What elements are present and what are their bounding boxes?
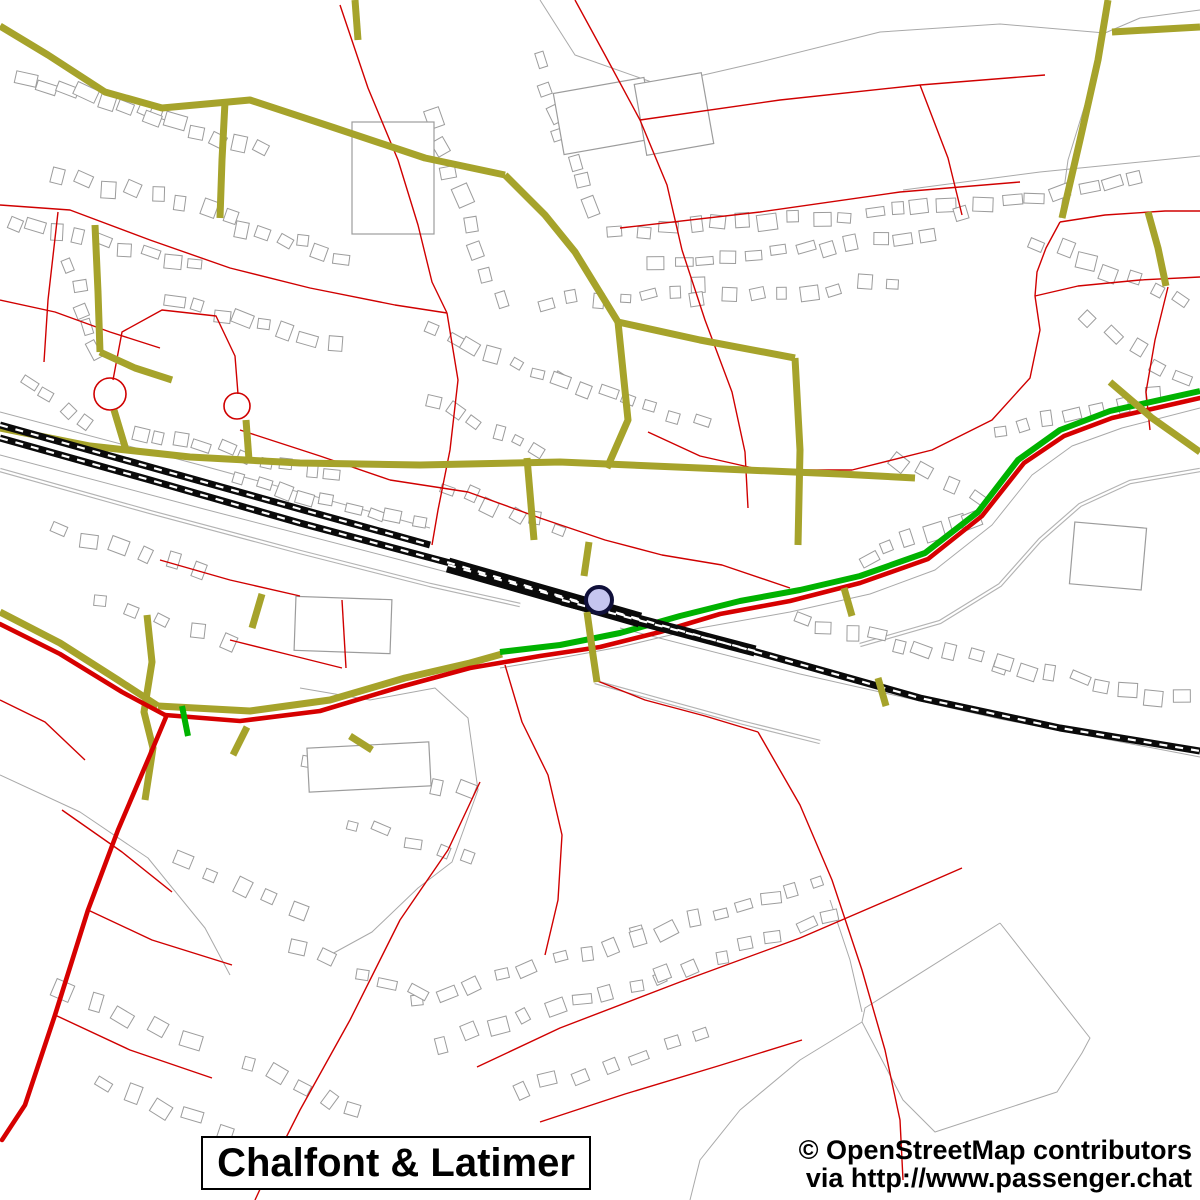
station-marker <box>586 587 612 613</box>
map-title: Chalfont & Latimer <box>217 1141 575 1186</box>
map-attribution: © OpenStreetMap contributors via http://… <box>799 1136 1192 1192</box>
map-canvas <box>0 0 1200 1200</box>
attribution-line1: © OpenStreetMap contributors <box>799 1136 1192 1164</box>
map-title-box: Chalfont & Latimer <box>201 1136 591 1190</box>
attribution-line2: via http://www.passenger.chat <box>799 1164 1192 1192</box>
map-view: Chalfont & Latimer © OpenStreetMap contr… <box>0 0 1200 1200</box>
